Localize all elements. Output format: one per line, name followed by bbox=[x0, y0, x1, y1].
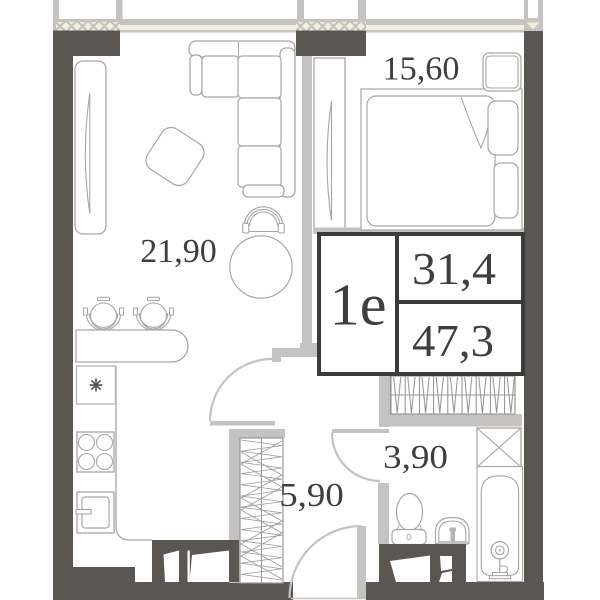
svg-text:3,90: 3,90 bbox=[383, 439, 448, 476]
svg-text:21,90: 21,90 bbox=[140, 233, 217, 270]
svg-text:15,60: 15,60 bbox=[383, 51, 460, 88]
svg-text:1е: 1е bbox=[330, 272, 387, 338]
svg-text:47,3: 47,3 bbox=[412, 315, 494, 366]
svg-text:31,4: 31,4 bbox=[412, 243, 496, 294]
svg-text:5,90: 5,90 bbox=[279, 477, 344, 514]
